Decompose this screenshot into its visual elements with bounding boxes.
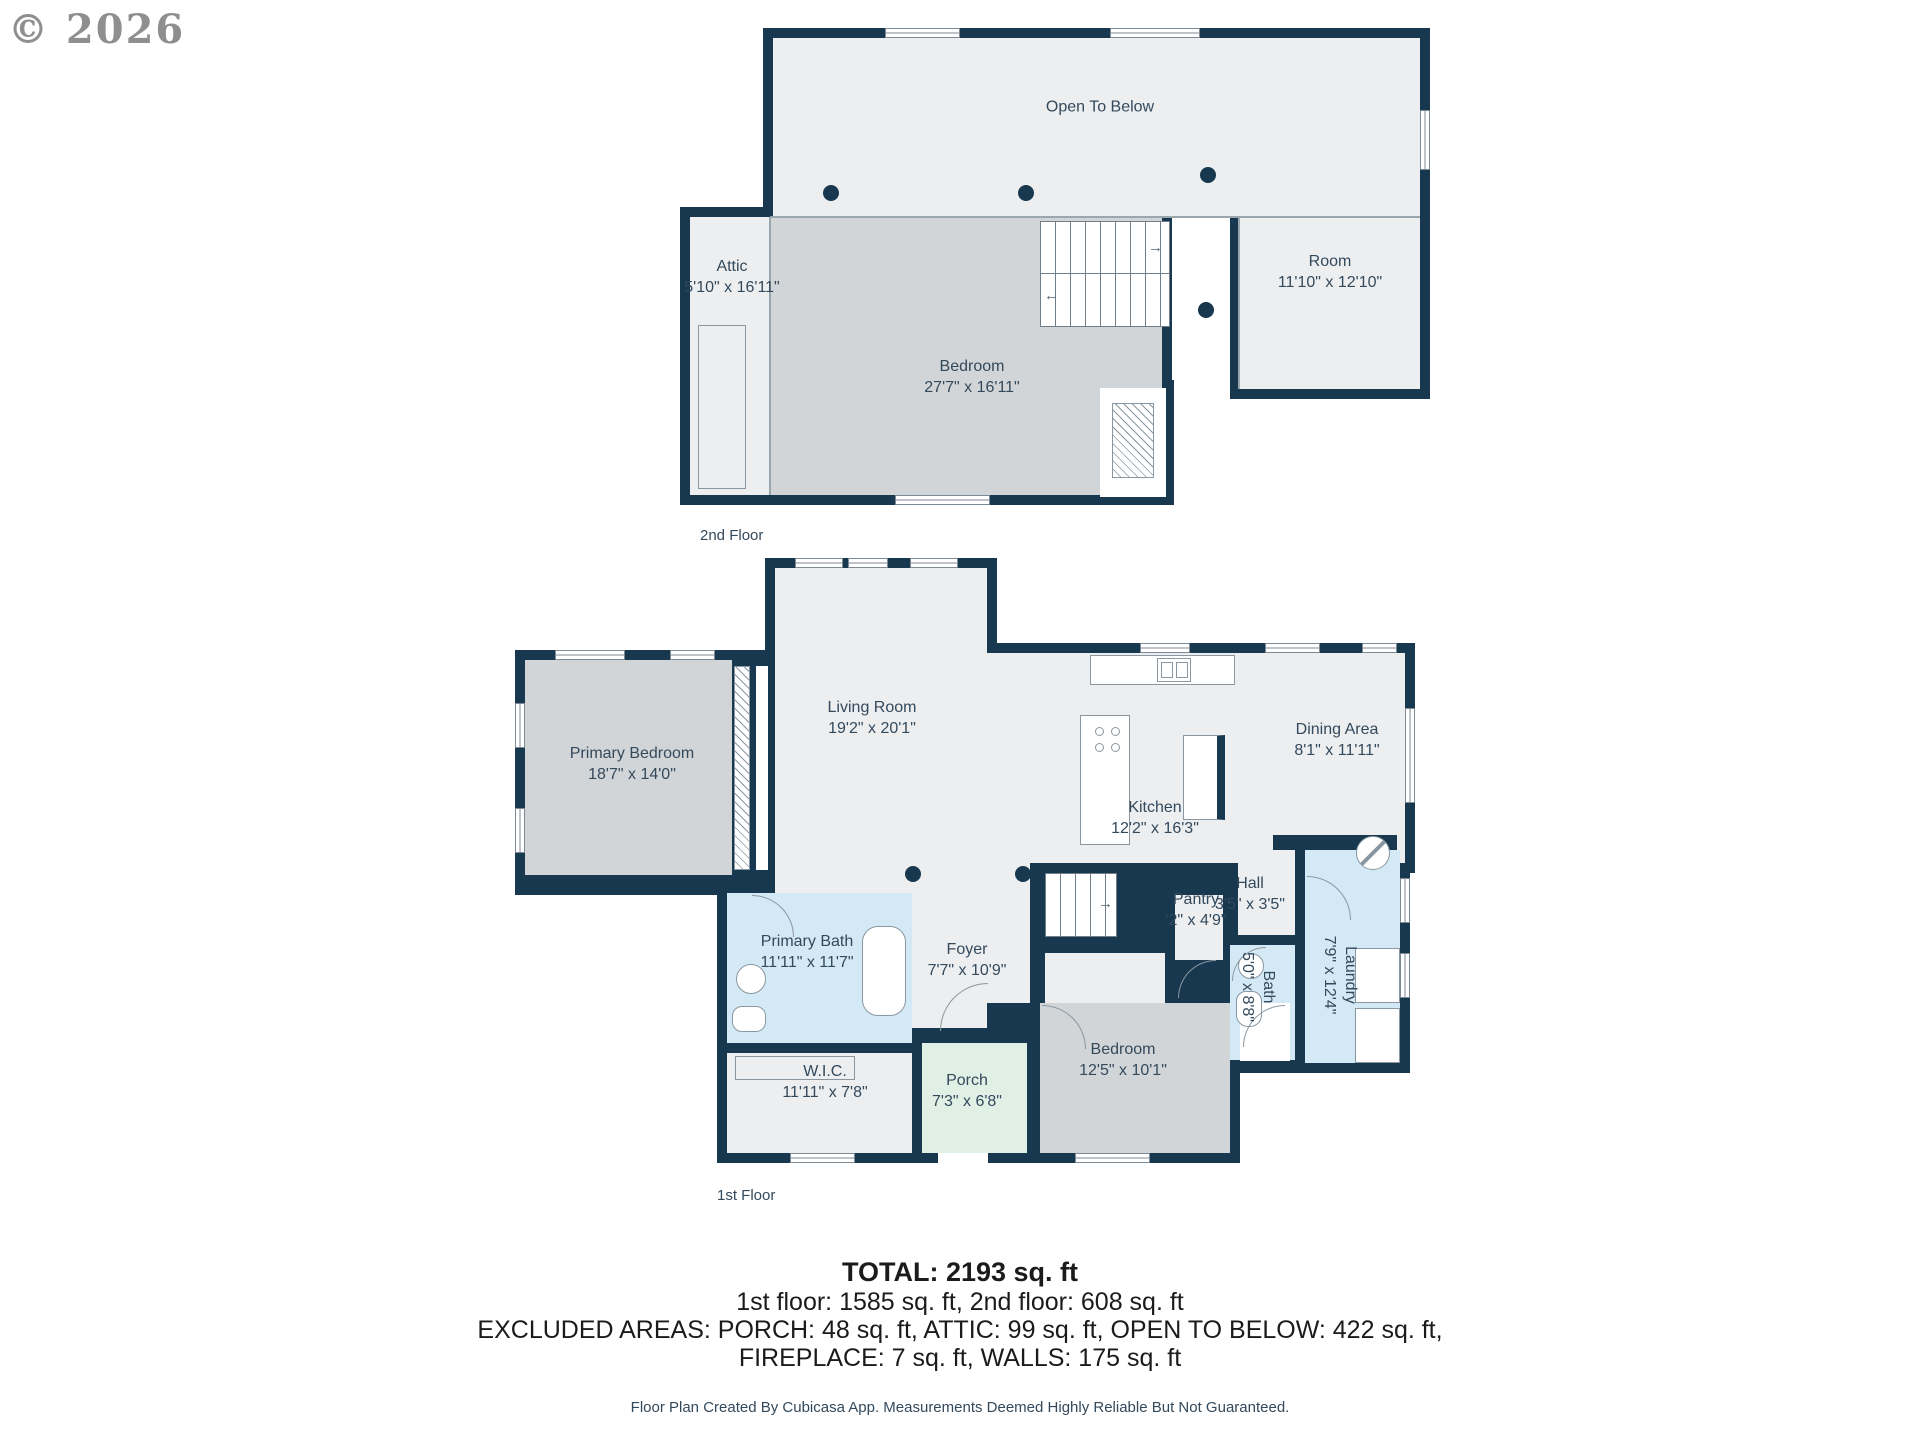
second-floor-tag: 2nd Floor	[700, 527, 763, 544]
window-marker	[910, 558, 958, 568]
room-boundary	[1238, 217, 1240, 389]
copyright-watermark: © 2026	[8, 6, 185, 53]
label-living-room: Living Room 19'2" x 20'1"	[828, 697, 917, 739]
window-marker	[848, 558, 888, 568]
wall	[1295, 835, 1305, 875]
sink-basin	[1176, 662, 1188, 678]
room-foyer	[905, 863, 1030, 1003]
window-marker	[1405, 708, 1415, 803]
window-marker	[1400, 878, 1410, 923]
label-dining-area: Dining Area 8'1" x 11'11"	[1294, 719, 1379, 761]
window-marker	[515, 808, 525, 853]
bathtub-icon	[862, 926, 906, 1016]
stair-landing-line	[1040, 273, 1170, 274]
window-marker	[1420, 110, 1430, 170]
floorplan-page: © 2026 → ←	[0, 0, 1920, 1440]
summary-floors: 1st floor: 1585 sq. ft, 2nd floor: 608 s…	[0, 1288, 1920, 1316]
summary-excluded-1: EXCLUDED AREAS: PORCH: 48 sq. ft, ATTIC:…	[0, 1316, 1920, 1344]
window-marker	[790, 1153, 855, 1163]
window-marker	[1362, 643, 1397, 653]
label-wic: W.I.C. 11'11" x 7'8"	[782, 1061, 867, 1103]
stove-burner	[1095, 743, 1104, 752]
stove-burner	[1111, 743, 1120, 752]
fireplace-wall-gap	[756, 666, 768, 870]
staircase-2f	[1040, 221, 1170, 327]
summary-total: TOTAL: 2193 sq. ft	[0, 1256, 1920, 1288]
room-open-to-below	[773, 38, 1420, 218]
summary-excluded-2: FIREPLACE: 7 sq. ft, WALLS: 175 sq. ft	[0, 1344, 1920, 1372]
stove-burner	[1111, 727, 1120, 736]
stove-icon	[1093, 725, 1125, 757]
washer-icon	[1355, 948, 1400, 1003]
stove-burner	[1095, 727, 1104, 736]
attic-closet	[698, 325, 746, 489]
wall	[1295, 933, 1305, 1063]
label-primary-bath: Primary Bath 11'11" x 11'7"	[760, 931, 853, 973]
column-dot	[1198, 302, 1214, 318]
column-dot	[823, 185, 839, 201]
window-marker	[1110, 28, 1200, 38]
footer-disclaimer: Floor Plan Created By Cubicasa App. Meas…	[0, 1399, 1920, 1416]
window-marker	[885, 28, 960, 38]
window-marker	[1265, 643, 1320, 653]
window-marker	[1075, 1153, 1150, 1163]
window-marker	[555, 650, 625, 660]
window-marker	[670, 650, 715, 660]
window-marker	[1400, 953, 1410, 998]
label-bedroom-2f: Bedroom 27'7" x 16'11"	[924, 356, 1019, 398]
stair-arrow-left-icon: ←	[1044, 288, 1059, 303]
room-room-2f	[1240, 217, 1420, 389]
window-marker	[1140, 643, 1190, 653]
label-bedroom-1f: Bedroom 12'5" x 10'1"	[1079, 1039, 1167, 1081]
column-dot	[1200, 167, 1216, 183]
label-attic: Attic 5'10" x 16'11"	[684, 256, 779, 298]
porch-opening	[938, 1153, 988, 1163]
label-porch: Porch 7'3" x 6'8"	[932, 1070, 1002, 1112]
first-floor-tag: 1st Floor	[717, 1187, 775, 1204]
window-marker	[895, 495, 990, 505]
water-heater-icon	[1356, 836, 1390, 870]
summary-block: TOTAL: 2193 sq. ft 1st floor: 1585 sq. f…	[0, 1256, 1920, 1372]
label-foyer: Foyer 7'7" x 10'9"	[928, 939, 1007, 981]
column-dot	[1018, 185, 1034, 201]
stair-arrow-right-icon: →	[1148, 240, 1163, 255]
stair-arrow-icon: →	[1098, 896, 1113, 911]
sink-basin	[1161, 662, 1173, 678]
label-room-2f: Room 11'10" x 12'10"	[1278, 251, 1382, 293]
window-marker	[515, 703, 525, 748]
dryer-icon	[1355, 1008, 1400, 1063]
column-dot	[905, 866, 921, 882]
fireplace-icon	[1112, 403, 1154, 478]
pbath-toilet-icon	[732, 1006, 766, 1032]
label-laundry: Laundry 7'9" x 12'4"	[1319, 936, 1361, 1015]
fireplace-wall-hatch	[734, 666, 750, 870]
first-floor-plan: →	[510, 558, 1420, 1173]
window-marker	[795, 558, 843, 568]
label-primary-bedroom: Primary Bedroom 18'7" x 14'0"	[570, 743, 694, 785]
label-hall: Hall 3'5" x 3'5"	[1215, 873, 1285, 915]
column-dot	[1015, 866, 1031, 882]
label-bath: Bath 5'0" x 8'8"	[1237, 952, 1279, 1022]
label-kitchen: Kitchen 12'2" x 16'3"	[1111, 797, 1199, 839]
room-boundary	[770, 216, 1420, 218]
label-open-to-below: Open To Below	[1046, 97, 1154, 118]
second-floor-plan: → ← Open To Below Attic 5'10" x 16'11" B…	[680, 25, 1430, 505]
